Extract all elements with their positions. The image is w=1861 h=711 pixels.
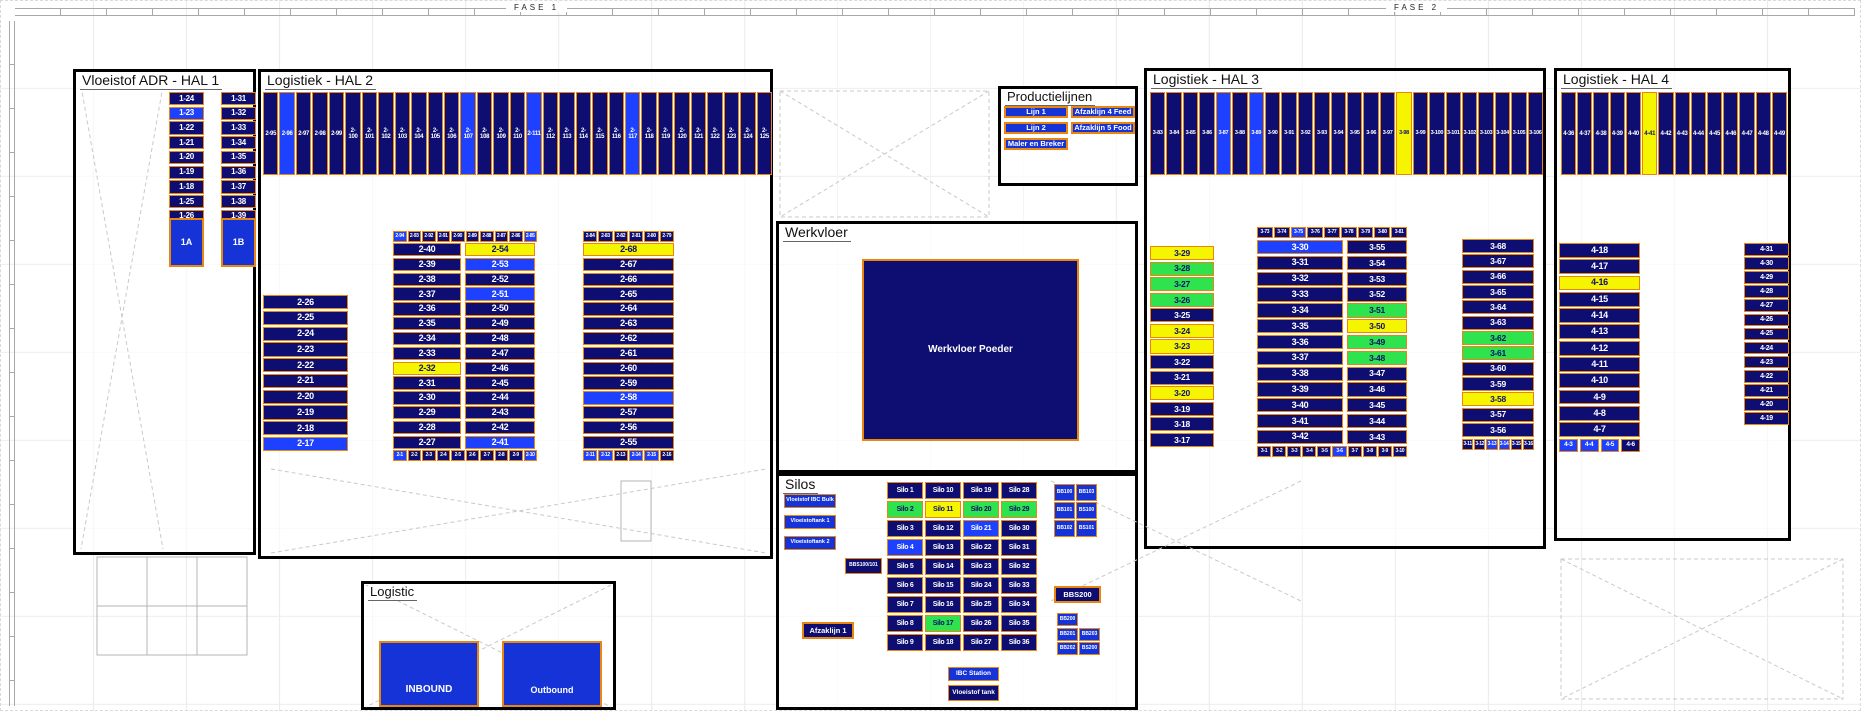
storage-cell[interactable]: 2-106 — [444, 92, 459, 175]
storage-cell[interactable]: 4-49 — [1772, 92, 1787, 175]
storage-cell[interactable]: 3-46 — [1347, 382, 1407, 396]
storage-cell[interactable]: 2-48 — [465, 332, 535, 345]
storage-cell[interactable]: 3-55 — [1347, 240, 1407, 254]
bb-tank-cell[interactable]: BB203 — [1079, 628, 1100, 641]
storage-cell[interactable]: 4-6 — [1621, 439, 1640, 452]
storage-cell[interactable]: 2-37 — [393, 287, 461, 300]
storage-cell[interactable]: 2-88 — [480, 231, 494, 242]
storage-cell[interactable]: 3-10 — [1393, 446, 1407, 457]
storage-cell[interactable]: 3-23 — [1150, 339, 1214, 353]
storage-cell[interactable]: 2-12 — [598, 450, 612, 461]
storage-cell[interactable]: 4-7 — [1559, 422, 1640, 437]
storage-cell[interactable]: 4-21 — [1744, 384, 1789, 397]
storage-cell[interactable]: 3-89 — [1249, 92, 1264, 175]
storage-cell[interactable]: 4-28 — [1744, 285, 1789, 298]
storage-cell[interactable]: 2-40 — [393, 243, 461, 256]
storage-cell[interactable]: 1-32 — [221, 107, 256, 120]
storage-cell[interactable]: 1-25 — [169, 195, 204, 208]
storage-cell[interactable]: 3-12 — [1474, 439, 1485, 450]
storage-cell[interactable]: 2-96 — [279, 92, 294, 175]
storage-cell[interactable]: 3-32 — [1257, 272, 1343, 286]
storage-cell[interactable]: 4-31 — [1744, 243, 1789, 256]
storage-cell[interactable]: 2-64 — [583, 302, 674, 315]
storage-cell[interactable]: 2-109 — [493, 92, 508, 175]
liquid-tank-button[interactable]: Vloeistof IBC Bulk — [784, 494, 836, 508]
werkvloer-poeder-area[interactable]: Werkvloer Poeder — [862, 259, 1079, 441]
storage-cell[interactable]: 2-86 — [509, 231, 523, 242]
storage-cell[interactable]: 2-121 — [691, 92, 706, 175]
storage-cell[interactable]: 1-23 — [169, 107, 204, 120]
storage-cell[interactable]: 2-56 — [583, 421, 674, 434]
storage-cell[interactable]: 2-47 — [465, 347, 535, 360]
storage-cell[interactable]: 2-50 — [465, 302, 535, 315]
silo-cell[interactable]: Silo 30 — [1001, 520, 1037, 537]
storage-cell[interactable]: 4-45 — [1707, 92, 1722, 175]
storage-cell[interactable]: 4-20 — [1744, 398, 1789, 411]
storage-cell[interactable]: 1-19 — [169, 166, 204, 179]
storage-cell[interactable]: 2-107 — [460, 92, 475, 175]
storage-cell[interactable]: 4-23 — [1744, 356, 1789, 369]
storage-cell[interactable]: 3-50 — [1347, 319, 1407, 333]
storage-cell[interactable]: 4-22 — [1744, 370, 1789, 383]
storage-cell[interactable]: 3-64 — [1462, 300, 1534, 314]
storage-cell[interactable]: 3-4 — [1302, 446, 1316, 457]
storage-cell[interactable]: 3-15 — [1511, 439, 1522, 450]
storage-cell[interactable]: 3-36 — [1257, 335, 1343, 349]
storage-cell[interactable]: 2-11 — [583, 450, 597, 461]
storage-cell[interactable]: 4-8 — [1559, 406, 1640, 421]
storage-cell[interactable]: 4-5 — [1601, 439, 1620, 452]
storage-cell[interactable]: 3-61 — [1462, 346, 1534, 360]
storage-cell[interactable]: 1-31 — [221, 92, 256, 105]
storage-cell[interactable]: 2-103 — [395, 92, 410, 175]
storage-cell[interactable]: 2-23 — [263, 342, 348, 356]
silo-cell[interactable]: Silo 22 — [963, 539, 999, 556]
storage-cell[interactable]: 2-94 — [393, 231, 407, 242]
storage-cell[interactable]: 4-36 — [1561, 92, 1576, 175]
storage-cell[interactable]: 3-31 — [1257, 256, 1343, 270]
storage-cell[interactable]: 3-54 — [1347, 256, 1407, 270]
storage-cell[interactable]: 3-91 — [1281, 92, 1296, 175]
storage-cell[interactable]: 2-113 — [559, 92, 574, 175]
storage-cell[interactable]: 2-80 — [644, 231, 658, 242]
storage-cell[interactable]: 2-116 — [609, 92, 624, 175]
storage-cell[interactable]: 3-100 — [1429, 92, 1444, 175]
storage-cell[interactable]: 4-26 — [1744, 314, 1789, 327]
storage-cell[interactable]: 3-41 — [1257, 414, 1343, 428]
silo-cell[interactable]: Silo 17 — [925, 615, 961, 632]
storage-cell[interactable]: 3-7 — [1348, 446, 1362, 457]
silo-cell[interactable]: Silo 8 — [887, 615, 923, 632]
storage-cell[interactable]: 3-59 — [1462, 377, 1534, 391]
silo-cell[interactable]: Silo 35 — [1001, 615, 1037, 632]
storage-cell[interactable]: 2-123 — [724, 92, 739, 175]
storage-cell[interactable]: 3-78 — [1341, 227, 1357, 238]
storage-cell[interactable]: 2-59 — [583, 376, 674, 389]
storage-cell[interactable]: 2-49 — [465, 317, 535, 330]
storage-cell[interactable]: 3-93 — [1314, 92, 1329, 175]
storage-cell[interactable]: 1-18 — [169, 180, 204, 193]
storage-cell[interactable]: 2-39 — [393, 258, 461, 271]
silo-cell[interactable]: Silo 33 — [1001, 577, 1037, 594]
bb-tank-cell[interactable]: BB103 — [1076, 484, 1097, 501]
silo-cell[interactable]: Silo 21 — [963, 520, 999, 537]
storage-cell[interactable]: 3-94 — [1331, 92, 1346, 175]
storage-cell[interactable]: 3-18 — [1150, 417, 1214, 431]
storage-cell[interactable]: 3-8 — [1363, 446, 1377, 457]
bb-tank-cell[interactable]: BB201 — [1057, 628, 1078, 641]
silo-cell[interactable]: Silo 24 — [963, 577, 999, 594]
production-line-button[interactable]: Afzaklijn 4 Feed — [1071, 106, 1135, 118]
storage-cell[interactable]: 3-103 — [1478, 92, 1493, 175]
storage-cell[interactable]: 2-10 — [524, 450, 538, 461]
silo-cell[interactable]: Silo 28 — [1001, 482, 1037, 499]
storage-cell[interactable]: 2-122 — [707, 92, 722, 175]
silo-cell[interactable]: Silo 25 — [963, 596, 999, 613]
storage-cell[interactable]: 2-53 — [465, 258, 535, 271]
bb-tank-cell[interactable]: BB101 — [1054, 502, 1075, 519]
storage-cell[interactable]: 3-73 — [1257, 227, 1273, 238]
storage-cell[interactable]: 4-13 — [1559, 324, 1640, 339]
storage-cell[interactable]: 3-30 — [1257, 240, 1343, 254]
bb-tank-cell[interactable]: BS101 — [1076, 520, 1097, 537]
storage-cell[interactable]: 4-30 — [1744, 257, 1789, 270]
storage-cell[interactable]: 2-68 — [583, 243, 674, 256]
storage-cell[interactable]: 3-42 — [1257, 430, 1343, 444]
storage-cell[interactable]: 3-49 — [1347, 335, 1407, 349]
storage-cell[interactable]: 3-40 — [1257, 398, 1343, 412]
storage-cell[interactable]: 2-22 — [263, 358, 348, 372]
storage-cell[interactable]: 2-52 — [465, 273, 535, 286]
storage-cell[interactable]: 2-45 — [465, 376, 535, 389]
storage-cell[interactable]: 2-120 — [674, 92, 689, 175]
storage-cell[interactable]: 2-36 — [393, 302, 461, 315]
storage-cell[interactable]: 2-43 — [465, 406, 535, 419]
bb-tank-cell[interactable]: BB102 — [1054, 520, 1075, 537]
storage-cell[interactable]: 3-101 — [1446, 92, 1461, 175]
silo-cell[interactable]: Silo 12 — [925, 520, 961, 537]
storage-cell[interactable]: 3-3 — [1287, 446, 1301, 457]
storage-cell[interactable]: 2-85 — [524, 231, 538, 242]
storage-cell[interactable]: 2-60 — [583, 362, 674, 375]
storage-cell[interactable]: 4-25 — [1744, 328, 1789, 341]
storage-cell[interactable]: 3-52 — [1347, 287, 1407, 301]
silo-cell[interactable]: Silo 6 — [887, 577, 923, 594]
silo-cell[interactable]: Silo 9 — [887, 634, 923, 651]
bb-tank-cell[interactable]: BS200 — [1079, 642, 1100, 655]
storage-cell[interactable]: 3-9 — [1378, 446, 1392, 457]
storage-cell[interactable]: 3-92 — [1298, 92, 1313, 175]
storage-cell[interactable]: 3-17 — [1150, 433, 1214, 447]
storage-cell[interactable]: 2-108 — [477, 92, 492, 175]
storage-cell[interactable]: 2-5 — [451, 450, 465, 461]
liquid-tank-button[interactable]: Vloeistoftank 1 — [784, 515, 836, 529]
storage-cell[interactable]: 4-38 — [1593, 92, 1608, 175]
storage-cell[interactable]: 2-66 — [583, 273, 674, 286]
storage-cell[interactable]: 3-53 — [1347, 272, 1407, 286]
bb200-cell[interactable]: BB200 — [1057, 613, 1078, 626]
storage-cell[interactable]: 2-117 — [625, 92, 640, 175]
silo-cell[interactable]: Silo 3 — [887, 520, 923, 537]
storage-cell[interactable]: 3-38 — [1257, 367, 1343, 381]
storage-cell[interactable]: 3-102 — [1462, 92, 1477, 175]
storage-cell[interactable]: 3-11 — [1462, 439, 1473, 450]
storage-cell[interactable]: 2-102 — [378, 92, 393, 175]
storage-cell[interactable]: 1-20 — [169, 151, 204, 164]
bb-tank-cell[interactable]: BS100 — [1076, 502, 1097, 519]
storage-cell[interactable]: 4-27 — [1744, 299, 1789, 312]
storage-cell[interactable]: 2-32 — [393, 362, 461, 375]
storage-cell[interactable]: 3-14 — [1499, 439, 1510, 450]
storage-cell[interactable]: 2-91 — [437, 231, 451, 242]
storage-cell[interactable]: 4-43 — [1675, 92, 1690, 175]
storage-cell[interactable]: 2-79 — [660, 231, 674, 242]
storage-cell[interactable]: 2-84 — [583, 231, 597, 242]
production-line-button[interactable]: Maler en Breker — [1004, 138, 1068, 150]
storage-cell[interactable]: 2-115 — [592, 92, 607, 175]
storage-cell[interactable]: 4-40 — [1626, 92, 1641, 175]
storage-cell[interactable]: 4-44 — [1691, 92, 1706, 175]
storage-cell[interactable]: 4-15 — [1559, 292, 1640, 307]
storage-cell[interactable]: 3-88 — [1232, 92, 1247, 175]
storage-cell[interactable]: 2-105 — [428, 92, 443, 175]
storage-cell[interactable]: 3-29 — [1150, 246, 1214, 260]
storage-cell[interactable]: 2-34 — [393, 332, 461, 345]
storage-cell[interactable]: 4-48 — [1756, 92, 1771, 175]
liquid-tank-button[interactable]: Vloeistoftank 2 — [784, 536, 836, 550]
inbound-area[interactable]: INBOUND — [379, 641, 479, 707]
silo-cell[interactable]: Silo 4 — [887, 539, 923, 556]
storage-cell[interactable]: 3-13 — [1486, 439, 1497, 450]
storage-cell[interactable]: 4-37 — [1577, 92, 1592, 175]
storage-cell[interactable]: 2-42 — [465, 421, 535, 434]
storage-cell[interactable]: 3-84 — [1166, 92, 1181, 175]
storage-cell[interactable]: 2-33 — [393, 347, 461, 360]
storage-cell[interactable]: 2-29 — [393, 406, 461, 419]
silo-cell[interactable]: Silo 7 — [887, 596, 923, 613]
storage-cell[interactable]: 1-36 — [221, 166, 256, 179]
silo-cell[interactable]: Silo 1 — [887, 482, 923, 499]
storage-cell[interactable]: 3-80 — [1374, 227, 1390, 238]
storage-cell[interactable]: 3-90 — [1265, 92, 1280, 175]
storage-cell[interactable]: 2-41 — [465, 436, 535, 449]
storage-cell[interactable]: 3-19 — [1150, 402, 1214, 416]
storage-cell[interactable]: 2-124 — [740, 92, 755, 175]
storage-cell[interactable]: 3-66 — [1462, 270, 1534, 284]
silo-cell[interactable]: Silo 10 — [925, 482, 961, 499]
storage-cell[interactable]: 3-37 — [1257, 351, 1343, 365]
hal1-area-1b[interactable]: 1B — [221, 218, 256, 267]
storage-cell[interactable]: 3-44 — [1347, 414, 1407, 428]
storage-cell[interactable]: 2-8 — [495, 450, 509, 461]
storage-cell[interactable]: 3-2 — [1272, 446, 1286, 457]
storage-cell[interactable]: 2-90 — [451, 231, 465, 242]
storage-cell[interactable]: 3-85 — [1183, 92, 1198, 175]
storage-cell[interactable]: 2-114 — [576, 92, 591, 175]
storage-cell[interactable]: 4-29 — [1744, 271, 1789, 284]
storage-cell[interactable]: 3-5 — [1317, 446, 1331, 457]
storage-cell[interactable]: 3-25 — [1150, 308, 1214, 322]
storage-cell[interactable]: 2-28 — [393, 421, 461, 434]
silo-cell[interactable]: Silo 15 — [925, 577, 961, 594]
storage-cell[interactable]: 2-38 — [393, 273, 461, 286]
storage-cell[interactable]: 2-31 — [393, 376, 461, 389]
storage-cell[interactable]: 1-38 — [221, 195, 256, 208]
storage-cell[interactable]: 2-21 — [263, 374, 348, 388]
storage-cell[interactable]: 2-87 — [495, 231, 509, 242]
silo-cell[interactable]: Silo 18 — [925, 634, 961, 651]
storage-cell[interactable]: 2-67 — [583, 258, 674, 271]
storage-cell[interactable]: 2-118 — [641, 92, 656, 175]
silo-cell[interactable]: Silo 36 — [1001, 634, 1037, 651]
storage-cell[interactable]: 3-98 — [1396, 92, 1411, 175]
storage-cell[interactable]: 3-24 — [1150, 324, 1214, 338]
afzaklijn1-unit[interactable]: Afzaklijn 1 — [802, 622, 854, 639]
silo-cell[interactable]: Silo 16 — [925, 596, 961, 613]
ibc-station-unit[interactable]: IBC Station — [948, 667, 999, 681]
storage-cell[interactable]: 3-86 — [1199, 92, 1214, 175]
storage-cell[interactable]: 1-21 — [169, 136, 204, 149]
storage-cell[interactable]: 4-11 — [1559, 357, 1640, 372]
storage-cell[interactable]: 4-19 — [1744, 412, 1789, 425]
storage-cell[interactable]: 2-61 — [583, 347, 674, 360]
storage-cell[interactable]: 3-87 — [1216, 92, 1231, 175]
storage-cell[interactable]: 2-18 — [263, 421, 348, 435]
storage-cell[interactable]: 3-33 — [1257, 287, 1343, 301]
storage-cell[interactable]: 2-2 — [408, 450, 422, 461]
outbound-area[interactable]: Outbound — [502, 641, 602, 707]
storage-cell[interactable]: 2-44 — [465, 391, 535, 404]
storage-cell[interactable]: 4-10 — [1559, 373, 1640, 388]
storage-cell[interactable]: 4-18 — [1559, 243, 1640, 258]
storage-cell[interactable]: 3-97 — [1380, 92, 1395, 175]
bbs200-unit[interactable]: BBS200 — [1054, 586, 1101, 603]
storage-cell[interactable]: 3-77 — [1324, 227, 1340, 238]
production-line-button[interactable]: Lijn 1 — [1004, 106, 1068, 118]
storage-cell[interactable]: 3-68 — [1462, 239, 1534, 253]
storage-cell[interactable]: 2-15 — [644, 450, 658, 461]
storage-cell[interactable]: 3-27 — [1150, 277, 1214, 291]
storage-cell[interactable]: 1-24 — [169, 92, 204, 105]
storage-cell[interactable]: 4-39 — [1610, 92, 1625, 175]
storage-cell[interactable]: 3-56 — [1462, 423, 1534, 437]
storage-cell[interactable]: 4-14 — [1559, 308, 1640, 323]
storage-cell[interactable]: 3-65 — [1462, 285, 1534, 299]
silo-cell[interactable]: Silo 34 — [1001, 596, 1037, 613]
production-line-button[interactable]: Lijn 2 — [1004, 122, 1068, 134]
storage-cell[interactable]: 3-51 — [1347, 303, 1407, 317]
storage-cell[interactable]: 4-9 — [1559, 390, 1640, 405]
storage-cell[interactable]: 2-24 — [263, 327, 348, 341]
storage-cell[interactable]: 4-41 — [1642, 92, 1657, 175]
storage-cell[interactable]: 2-125 — [757, 92, 772, 175]
storage-cell[interactable]: 3-22 — [1150, 355, 1214, 369]
storage-cell[interactable]: 2-9 — [509, 450, 523, 461]
storage-cell[interactable]: 2-119 — [658, 92, 673, 175]
hal1-area-1a[interactable]: 1A — [169, 218, 204, 267]
storage-cell[interactable]: 3-74 — [1274, 227, 1290, 238]
storage-cell[interactable]: 3-106 — [1528, 92, 1543, 175]
silo-cell[interactable]: Silo 11 — [925, 501, 961, 518]
bbs100-101-unit[interactable]: BBS100/101 — [845, 558, 882, 574]
storage-cell[interactable]: 2-6 — [466, 450, 480, 461]
storage-cell[interactable]: 3-20 — [1150, 386, 1214, 400]
storage-cell[interactable]: 3-76 — [1307, 227, 1323, 238]
storage-cell[interactable]: 1-33 — [221, 121, 256, 134]
storage-cell[interactable]: 3-63 — [1462, 316, 1534, 330]
silo-cell[interactable]: Silo 27 — [963, 634, 999, 651]
storage-cell[interactable]: 3-83 — [1150, 92, 1165, 175]
storage-cell[interactable]: 2-51 — [465, 287, 535, 300]
silo-cell[interactable]: Silo 26 — [963, 615, 999, 632]
storage-cell[interactable]: 1-34 — [221, 136, 256, 149]
storage-cell[interactable]: 3-67 — [1462, 254, 1534, 268]
storage-cell[interactable]: 3-1 — [1257, 446, 1271, 457]
storage-cell[interactable]: 2-46 — [465, 362, 535, 375]
storage-cell[interactable]: 2-19 — [263, 405, 348, 419]
storage-cell[interactable]: 2-27 — [393, 436, 461, 449]
silo-cell[interactable]: Silo 2 — [887, 501, 923, 518]
storage-cell[interactable]: 2-20 — [263, 390, 348, 404]
storage-cell[interactable]: 2-100 — [345, 92, 360, 175]
storage-cell[interactable]: 2-3 — [422, 450, 436, 461]
storage-cell[interactable]: 2-93 — [408, 231, 422, 242]
storage-cell[interactable]: 4-47 — [1739, 92, 1754, 175]
storage-cell[interactable]: 3-81 — [1391, 227, 1407, 238]
storage-cell[interactable]: 2-16 — [660, 450, 674, 461]
storage-cell[interactable]: 3-48 — [1347, 351, 1407, 365]
storage-cell[interactable]: 1-35 — [221, 151, 256, 164]
storage-cell[interactable]: 2-63 — [583, 317, 674, 330]
silo-cell[interactable]: Silo 19 — [963, 482, 999, 499]
storage-cell[interactable]: 2-7 — [480, 450, 494, 461]
storage-cell[interactable]: 2-30 — [393, 391, 461, 404]
storage-cell[interactable]: 2-65 — [583, 287, 674, 300]
storage-cell[interactable]: 3-21 — [1150, 371, 1214, 385]
storage-cell[interactable]: 3-6 — [1332, 446, 1346, 457]
storage-cell[interactable]: 4-16 — [1559, 276, 1640, 291]
storage-cell[interactable]: 2-110 — [510, 92, 525, 175]
storage-cell[interactable]: 3-47 — [1347, 367, 1407, 381]
silo-cell[interactable]: Silo 5 — [887, 558, 923, 575]
storage-cell[interactable]: 3-96 — [1363, 92, 1378, 175]
storage-cell[interactable]: 3-99 — [1413, 92, 1428, 175]
storage-cell[interactable]: 3-60 — [1462, 362, 1534, 376]
silo-cell[interactable]: Silo 23 — [963, 558, 999, 575]
storage-cell[interactable]: 1-22 — [169, 121, 204, 134]
storage-cell[interactable]: 1-37 — [221, 180, 256, 193]
silo-cell[interactable]: Silo 31 — [1001, 539, 1037, 556]
storage-cell[interactable]: 3-45 — [1347, 398, 1407, 412]
production-line-button[interactable]: Afzaklijn 5 Food — [1071, 122, 1135, 134]
storage-cell[interactable]: 2-111 — [526, 92, 541, 175]
storage-cell[interactable]: 4-42 — [1658, 92, 1673, 175]
storage-cell[interactable]: 2-58 — [583, 391, 674, 404]
storage-cell[interactable]: 3-57 — [1462, 408, 1534, 422]
storage-cell[interactable]: 2-17 — [263, 437, 348, 451]
storage-cell[interactable]: 4-17 — [1559, 259, 1640, 274]
storage-cell[interactable]: 2-99 — [329, 92, 344, 175]
storage-cell[interactable]: 2-26 — [263, 295, 348, 309]
storage-cell[interactable]: 3-58 — [1462, 392, 1534, 406]
storage-cell[interactable]: 2-83 — [598, 231, 612, 242]
storage-cell[interactable]: 3-35 — [1257, 319, 1343, 333]
storage-cell[interactable]: 2-97 — [296, 92, 311, 175]
storage-cell[interactable]: 2-92 — [422, 231, 436, 242]
storage-cell[interactable]: 3-26 — [1150, 293, 1214, 307]
storage-cell[interactable]: 2-98 — [312, 92, 327, 175]
storage-cell[interactable]: 2-104 — [411, 92, 426, 175]
